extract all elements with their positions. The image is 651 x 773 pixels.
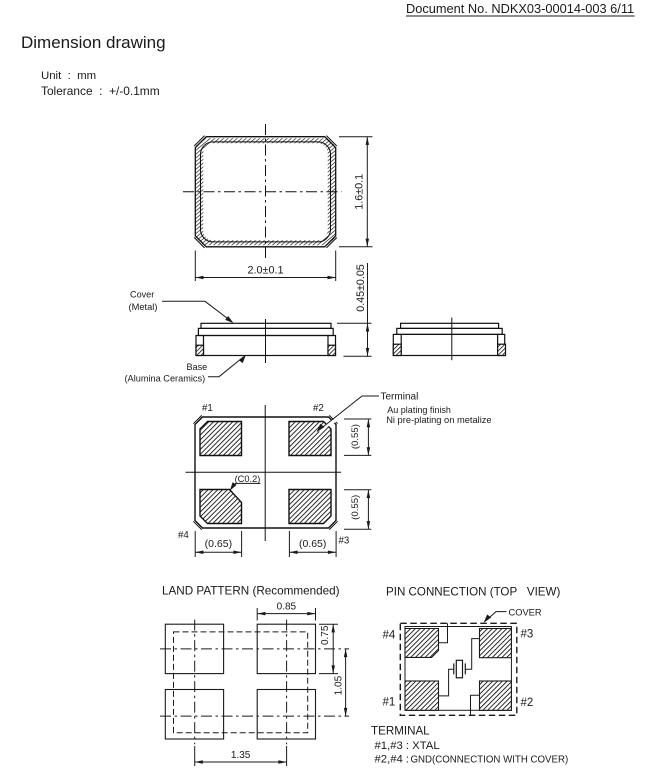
svg-text:PIN CONNECTION (TOP VIEW): PIN CONNECTION (TOP VIEW) bbox=[386, 586, 560, 599]
svg-text:(0.55): (0.55) bbox=[350, 424, 361, 449]
svg-text:COVER: COVER bbox=[509, 608, 542, 618]
svg-text:GND(CONNECTION WITH COVER): GND(CONNECTION WITH COVER) bbox=[411, 755, 569, 766]
svg-text:Au plating finish: Au plating finish bbox=[387, 405, 451, 415]
svg-text:Tolerance : +/-0.1mm: Tolerance : +/-0.1mm bbox=[41, 84, 160, 98]
svg-text:Base: Base bbox=[187, 362, 208, 372]
svg-text:#4: #4 bbox=[383, 630, 396, 642]
svg-text:Unit : mm: Unit : mm bbox=[41, 70, 96, 82]
svg-text:0.45±0.05: 0.45±0.05 bbox=[355, 264, 367, 312]
svg-text:Terminal: Terminal bbox=[381, 391, 419, 402]
svg-text:2.0±0.1: 2.0±0.1 bbox=[248, 265, 284, 277]
svg-text:0.75: 0.75 bbox=[320, 625, 331, 645]
svg-text:#1,#3 : XTAL: #1,#3 : XTAL bbox=[375, 740, 440, 752]
svg-text:#3: #3 bbox=[339, 536, 350, 547]
svg-text:1.35: 1.35 bbox=[231, 750, 251, 761]
svg-text:(0.65): (0.65) bbox=[205, 538, 232, 550]
svg-text:#1: #1 bbox=[202, 403, 213, 414]
svg-text:(Alumina Ceramics): (Alumina Ceramics) bbox=[125, 374, 206, 384]
svg-text:(Metal): (Metal) bbox=[129, 302, 158, 312]
svg-text:(C0.2): (C0.2) bbox=[235, 474, 261, 484]
svg-text:(0.55): (0.55) bbox=[350, 495, 361, 520]
svg-text:1.6±0.1: 1.6±0.1 bbox=[354, 174, 366, 210]
svg-text:#4: #4 bbox=[178, 530, 189, 541]
svg-text:LAND PATTERN (Recommended): LAND PATTERN (Recommended) bbox=[162, 585, 340, 598]
svg-text:Dimension drawing: Dimension drawing bbox=[21, 33, 166, 52]
svg-text:#3: #3 bbox=[521, 629, 534, 641]
svg-text:Cover: Cover bbox=[130, 290, 154, 300]
svg-text:Document No. NDKX03-00014-003: Document No. NDKX03-00014-003 6/11 bbox=[406, 1, 634, 16]
svg-text:1.05: 1.05 bbox=[334, 675, 345, 695]
svg-text:#2,#4 :: #2,#4 : bbox=[375, 754, 410, 766]
svg-text:Ni pre-plating on metalize: Ni pre-plating on metalize bbox=[386, 415, 491, 425]
svg-text:#1: #1 bbox=[383, 697, 396, 709]
svg-text:0.85: 0.85 bbox=[277, 602, 297, 613]
svg-text:#2: #2 bbox=[313, 403, 324, 414]
svg-text:(0.65): (0.65) bbox=[299, 538, 326, 550]
svg-text:#2: #2 bbox=[521, 697, 534, 709]
svg-text:TERMINAL: TERMINAL bbox=[371, 725, 430, 738]
